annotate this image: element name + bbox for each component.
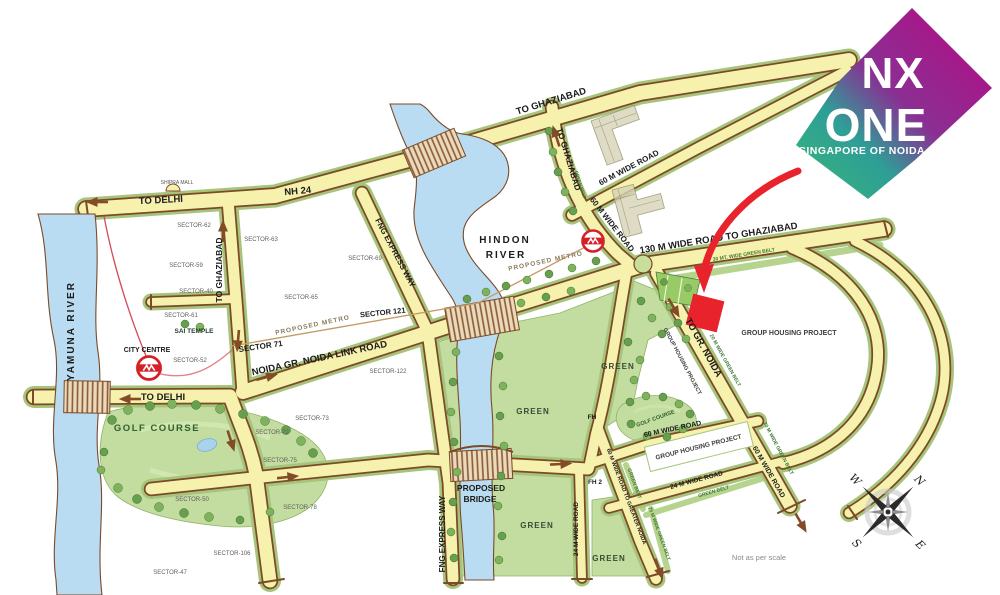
label-golf-course: GOLF COURSE	[114, 423, 200, 434]
label-green-4: GREEN	[601, 362, 634, 371]
label-to-delhi-bottom: TO DELHI	[141, 392, 185, 403]
metro-icon-city-centre	[136, 357, 161, 380]
label-city-centre: CITY CENTRE	[124, 347, 171, 354]
label-fh2: FH 2	[588, 479, 602, 486]
label-to-ghaziabad-left: TO GHAZIABAD	[214, 237, 224, 302]
compass-east: E	[912, 537, 928, 553]
label-hindon-1: HINDON	[479, 235, 530, 246]
label-green-2: GREEN	[520, 521, 553, 530]
label-sai-temple: SAI TEMPLE	[174, 328, 214, 335]
compass-rose: N E S W	[815, 439, 959, 583]
label-hindon-2: RIVER	[486, 250, 527, 261]
road-outer-arc	[849, 241, 945, 513]
label-to-delhi-top: TO DELHI	[139, 194, 184, 207]
logo-one: ONE	[825, 99, 928, 151]
bridge-yamuna	[64, 381, 111, 414]
sector-label: SECTOR-47	[153, 570, 187, 576]
location-map: TO GHAZIABAD NH 24 TO DELHI SHIPRA MALL …	[0, 0, 1000, 595]
sector-label: SECTOR-78	[283, 505, 317, 511]
metro-red-line	[104, 216, 146, 356]
logo-tagline: SINGAPORE OF NOIDA	[799, 145, 925, 157]
compass-south: S	[849, 536, 864, 551]
label-yamuna-river: YAMUNA RIVER	[66, 281, 77, 381]
compass-north: N	[911, 472, 928, 489]
label-shipra-mall: SHIPRA MALL	[161, 180, 194, 186]
sector-label: SECTOR-75	[263, 458, 297, 464]
label-green-3: GREEN	[592, 554, 625, 563]
label-fng-2: FNG EXPRESS WAY	[438, 495, 447, 572]
roundabout	[634, 255, 652, 273]
sector-label: SECTOR-65	[284, 295, 318, 301]
label-proposed-bridge-2: BRIDGE	[463, 494, 496, 504]
scale-note: Not as per scale	[732, 553, 786, 562]
label-green-1: GREEN	[516, 407, 549, 416]
label-24m-vertical: 24 M WIDE ROAD	[573, 502, 580, 556]
sector-label: SECTOR-72	[255, 430, 289, 436]
label-fh: FH	[588, 414, 597, 421]
label-proposed-metro-1: PROPOSED METRO	[275, 314, 351, 337]
sector-label: SECTOR-52	[173, 358, 207, 364]
sector-label: SECTOR-61	[164, 313, 198, 319]
nx-one-logo: NX ONE SINGAPORE OF NOIDA	[796, 8, 992, 199]
sector-label: SECTOR-50	[175, 497, 209, 503]
sector-label: SECTOR-106	[214, 551, 252, 557]
label-proposed-bridge-1: PROPOSED	[457, 483, 505, 493]
sector-label: SECTOR-40	[179, 289, 213, 295]
compass-west: W	[847, 471, 865, 489]
sector-label: SECTOR-63	[244, 237, 278, 243]
metro-icon-130m	[581, 231, 604, 252]
sector-label: SECTOR-59	[169, 263, 203, 269]
sector-label: SECTOR-69	[348, 256, 382, 262]
sector-label: SECTOR-73	[295, 416, 329, 422]
sector-label: SECTOR-122	[370, 369, 408, 375]
label-group-housing-2: GROUP HOUSING PROJECT	[741, 330, 837, 337]
sector-label: SECTOR-62	[177, 223, 211, 229]
logo-nx: NX	[861, 49, 924, 98]
